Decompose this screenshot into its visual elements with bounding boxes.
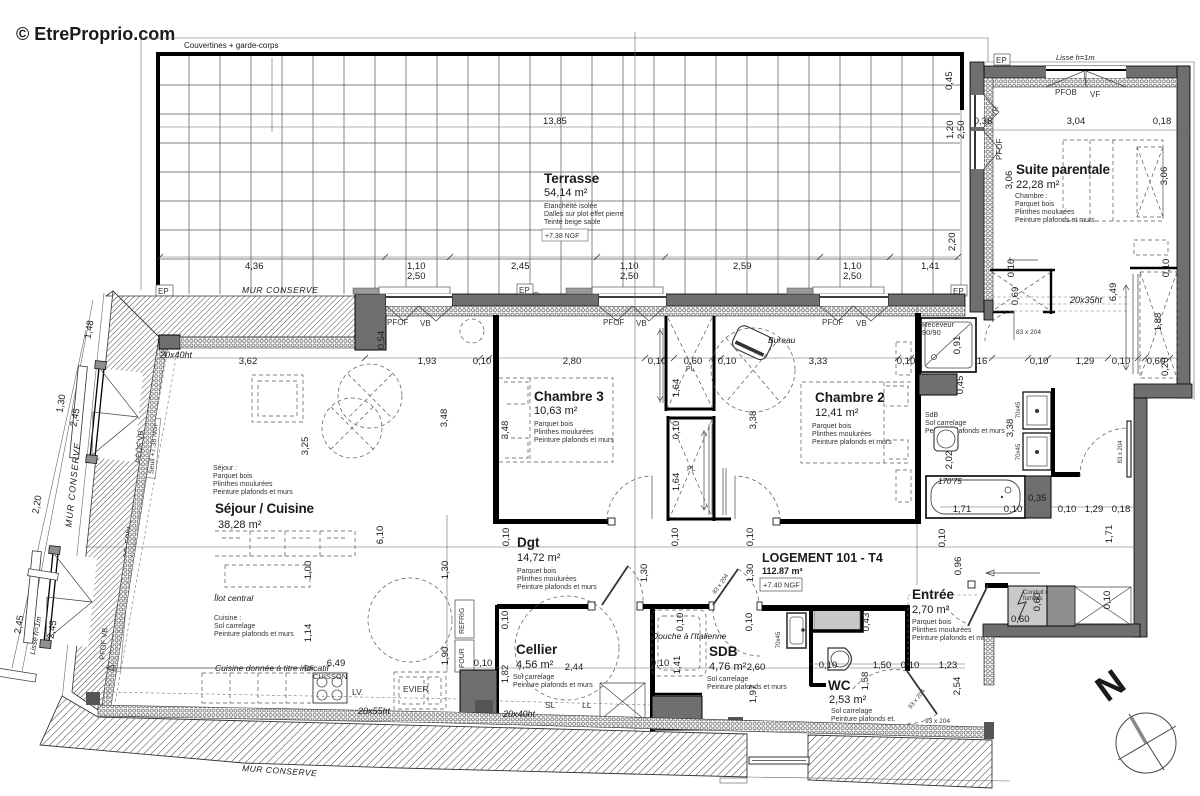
svg-text:Parquet bois: Parquet bois: [213, 473, 253, 480]
svg-text:Peinture plafonds et murs: Peinture plafonds et murs: [517, 584, 597, 591]
svg-text:0,18: 0,18: [1153, 116, 1172, 127]
svg-text:3,48: 3,48: [500, 421, 511, 440]
svg-text:PFOB: PFOB: [1055, 88, 1077, 97]
svg-text:Parquet bois: Parquet bois: [912, 619, 952, 626]
svg-text:LL: LL: [582, 700, 592, 710]
svg-text:Parquet bois: Parquet bois: [812, 423, 852, 430]
svg-text:LV.: LV.: [352, 687, 363, 697]
svg-text:Teinte beige sable: Teinte beige sable: [544, 219, 601, 226]
svg-text:0,91: 0,91: [952, 336, 963, 355]
svg-text:0,10: 0,10: [819, 660, 838, 671]
svg-text:Sol carrelage: Sol carrelage: [707, 676, 748, 683]
svg-text:Sol carrelage: Sol carrelage: [214, 623, 255, 630]
svg-text:1,29: 1,29: [1085, 504, 1104, 515]
svg-text:20x40ht: 20x40ht: [159, 350, 193, 360]
svg-text:0,10: 0,10: [474, 658, 493, 669]
svg-text:2,54: 2,54: [952, 677, 963, 696]
svg-text:0,96: 0,96: [953, 557, 964, 576]
svg-text:90/90: 90/90: [922, 328, 941, 337]
svg-text:12,41 m²: 12,41 m²: [815, 407, 859, 419]
svg-text:Plinthes moulurées: Plinthes moulurées: [1015, 209, 1075, 216]
svg-text:0,10: 0,10: [1030, 356, 1049, 367]
svg-text:83 x 204: 83 x 204: [1118, 440, 1124, 464]
svg-text:Plinthes moulurées: Plinthes moulurées: [517, 576, 577, 583]
svg-text:Séjour :: Séjour :: [213, 465, 237, 472]
svg-text:0,45: 0,45: [944, 72, 955, 91]
svg-text:1,50: 1,50: [873, 660, 892, 671]
svg-text:54,14 m²: 54,14 m²: [544, 187, 588, 199]
svg-text:38,28 m²: 38,28 m²: [218, 519, 262, 531]
svg-text:Peinture plafonds et murs: Peinture plafonds et murs: [214, 631, 294, 638]
svg-text:VF: VF: [1090, 90, 1100, 99]
svg-text:3,62: 3,62: [239, 356, 258, 367]
svg-text:170'75: 170'75: [938, 477, 962, 486]
svg-text:PL: PL: [686, 366, 695, 373]
svg-text:3,06: 3,06: [1004, 171, 1015, 190]
svg-text:FOUR: FOUR: [459, 648, 466, 668]
svg-text:1,97: 1,97: [748, 685, 759, 704]
svg-text:6,10: 6,10: [375, 526, 386, 545]
svg-text:0,10: 0,10: [718, 356, 737, 367]
svg-text:1,41: 1,41: [672, 656, 683, 675]
svg-text:1,14: 1,14: [303, 624, 314, 643]
svg-text:Cellier: Cellier: [516, 642, 558, 657]
svg-text:2,50: 2,50: [843, 271, 862, 282]
svg-text:Parquet bois: Parquet bois: [517, 568, 557, 575]
svg-text:Plinthes moulurées: Plinthes moulurées: [812, 431, 872, 438]
svg-text:0,10: 0,10: [1161, 259, 1172, 278]
svg-text:VB: VB: [420, 319, 431, 328]
svg-text:© EtreProprio.com: © EtreProprio.com: [16, 24, 175, 44]
svg-text:22,28 m²: 22,28 m²: [1016, 179, 1060, 191]
svg-text:1,64: 1,64: [671, 473, 682, 492]
svg-text:2,53 m²: 2,53 m²: [829, 694, 867, 706]
svg-text:CUISSON: CUISSON: [313, 672, 347, 681]
svg-text:0,10: 0,10: [473, 356, 492, 367]
svg-text:2,45: 2,45: [511, 261, 530, 272]
svg-text:+7.38 NGF: +7.38 NGF: [545, 233, 579, 240]
svg-text:Douche à l'Italienne: Douche à l'Italienne: [652, 631, 727, 641]
svg-text:0,35: 0,35: [1028, 493, 1047, 504]
svg-text:Sol carrelage: Sol carrelage: [831, 708, 872, 715]
svg-text:0,10: 0,10: [1112, 356, 1131, 367]
svg-text:VB: VB: [856, 319, 867, 328]
svg-text:0,54: 0,54: [376, 331, 387, 350]
svg-text:1,93: 1,93: [418, 356, 437, 367]
svg-text:0,10: 0,10: [1102, 591, 1113, 610]
svg-text:20x35ht: 20x35ht: [1069, 295, 1103, 305]
svg-text:1,82: 1,82: [500, 665, 511, 684]
svg-text:3,04: 3,04: [1067, 116, 1086, 127]
svg-text:Sol carrelage: Sol carrelage: [925, 420, 966, 427]
svg-text:20x55ht: 20x55ht: [357, 706, 391, 716]
svg-text:1,29: 1,29: [1076, 356, 1095, 367]
svg-text:0,60: 0,60: [1032, 593, 1043, 612]
svg-text:MUR CONSERVE: MUR CONSERVE: [242, 285, 318, 295]
svg-text:112.87 m³: 112.87 m³: [762, 566, 803, 576]
svg-text:1,00: 1,00: [303, 561, 314, 580]
svg-text:0,10: 0,10: [651, 658, 670, 669]
svg-text:4,76 m²: 4,76 m²: [709, 661, 747, 673]
svg-text:Peinture plafonds et murs: Peinture plafonds et murs: [534, 437, 614, 444]
svg-text:0,10: 0,10: [1004, 504, 1023, 515]
svg-text:1,23: 1,23: [939, 660, 958, 671]
svg-text:PFOF: PFOF: [822, 318, 843, 327]
svg-text:2,70 m²: 2,70 m²: [912, 604, 950, 616]
svg-text:Cuisine :: Cuisine :: [214, 615, 241, 622]
svg-text:2,50: 2,50: [620, 271, 639, 282]
svg-text:Peinture plafonds et.: Peinture plafonds et.: [831, 716, 895, 723]
svg-text:3,48: 3,48: [439, 409, 450, 428]
svg-text:PFOF: PFOF: [995, 139, 1004, 160]
svg-text:0,10: 0,10: [1006, 259, 1017, 278]
svg-text:SdB: SdB: [925, 412, 939, 419]
svg-text:0,10: 0,10: [670, 528, 681, 547]
svg-text:20x40ht: 20x40ht: [502, 709, 536, 719]
svg-text:4,36: 4,36: [245, 261, 264, 272]
svg-text:1,71: 1,71: [953, 504, 972, 515]
svg-text:0,18: 0,18: [1112, 504, 1131, 515]
svg-text:EP: EP: [158, 287, 169, 296]
svg-text:2,80: 2,80: [563, 356, 582, 367]
svg-text:0,10: 0,10: [671, 421, 682, 440]
svg-text:0,10: 0,10: [1058, 504, 1077, 515]
svg-text:Terrasse: Terrasse: [544, 171, 600, 186]
svg-text:Bureau: Bureau: [768, 335, 796, 345]
svg-text:Lisse h=1m: Lisse h=1m: [1056, 53, 1095, 62]
svg-text:Plinthes moulurées: Plinthes moulurées: [534, 429, 594, 436]
svg-text:Séjour / Cuisine: Séjour / Cuisine: [215, 501, 315, 516]
svg-text:2,02: 2,02: [944, 451, 955, 470]
svg-text:3,38: 3,38: [1005, 419, 1016, 438]
svg-text:0,10: 0,10: [648, 356, 667, 367]
svg-text:PFOF: PFOF: [603, 318, 624, 327]
svg-text:2,60: 2,60: [747, 662, 766, 673]
svg-text:Chambre :: Chambre :: [1015, 193, 1048, 200]
svg-text:Etanchéité isolée: Etanchéité isolée: [544, 203, 597, 210]
svg-text:2,44: 2,44: [565, 662, 584, 673]
svg-text:6,49: 6,49: [1108, 283, 1119, 302]
svg-text:4,56 m²: 4,56 m²: [516, 659, 554, 671]
svg-text:1,30: 1,30: [745, 564, 756, 583]
svg-text:Peinture plafonds et murs: Peinture plafonds et murs: [513, 682, 593, 689]
svg-text:Sol carrelage: Sol carrelage: [513, 674, 554, 681]
svg-text:0,45: 0,45: [955, 376, 966, 395]
svg-text:70x45: 70x45: [1016, 443, 1022, 460]
svg-text:0,20: 0,20: [1160, 358, 1171, 377]
svg-text:2,50: 2,50: [407, 271, 426, 282]
svg-text:Plinthes moulurées: Plinthes moulurées: [912, 627, 972, 634]
svg-text:0,69: 0,69: [1010, 287, 1021, 306]
svg-text:2,59: 2,59: [733, 261, 752, 272]
svg-text:1,41: 1,41: [921, 261, 940, 272]
svg-text:0,10: 0,10: [745, 528, 756, 547]
svg-text:1,30: 1,30: [440, 561, 451, 580]
svg-text:3,06: 3,06: [1159, 167, 1170, 186]
svg-text:3,38: 3,38: [748, 411, 759, 430]
svg-text:1,90: 1,90: [440, 647, 451, 666]
svg-text:2,50: 2,50: [956, 121, 967, 140]
svg-text:70x45: 70x45: [1016, 401, 1022, 418]
svg-text:Parquet bois: Parquet bois: [534, 421, 574, 428]
svg-text:SL: SL: [545, 700, 556, 710]
svg-text:0,10: 0,10: [937, 529, 948, 548]
svg-text:+7.40 NGF: +7.40 NGF: [763, 581, 800, 590]
svg-text:0,43: 0,43: [861, 613, 872, 632]
svg-text:Chambre 2: Chambre 2: [815, 390, 885, 405]
svg-text:Peinture plafonds et murs: Peinture plafonds et murs: [812, 439, 892, 446]
svg-text:10,63 m²: 10,63 m²: [534, 405, 578, 417]
svg-text:0,10: 0,10: [675, 613, 686, 632]
svg-text:EP: EP: [996, 56, 1007, 65]
svg-text:0,36: 0,36: [974, 116, 993, 127]
svg-text:Peinture plafonds et murs: Peinture plafonds et murs: [912, 635, 992, 642]
svg-text:EVIER: EVIER: [403, 684, 429, 694]
svg-text:3,25: 3,25: [300, 437, 311, 456]
svg-text:Chambre 3: Chambre 3: [534, 389, 604, 404]
svg-text:LOGEMENT 101 - T4: LOGEMENT 101 - T4: [762, 551, 883, 565]
svg-text:0,10: 0,10: [744, 613, 755, 632]
svg-text:1,20: 1,20: [945, 121, 956, 140]
svg-text:1,71: 1,71: [1104, 525, 1115, 544]
svg-text:93 x 204: 93 x 204: [925, 718, 950, 725]
svg-text:1,30: 1,30: [639, 564, 650, 583]
svg-text:VB: VB: [636, 319, 647, 328]
svg-text:1,64: 1,64: [671, 379, 682, 398]
svg-text:13,85: 13,85: [543, 116, 567, 127]
svg-text:1,88: 1,88: [1153, 313, 1164, 332]
svg-text:2,20: 2,20: [947, 233, 958, 252]
svg-text:PL: PL: [687, 466, 696, 473]
svg-text:0,10: 0,10: [897, 356, 916, 367]
svg-text:0,10: 0,10: [501, 528, 512, 547]
svg-text:Couvertines + garde-corps: Couvertines + garde-corps: [184, 41, 279, 50]
svg-text:Peinture plafonds et murs: Peinture plafonds et murs: [1015, 217, 1095, 224]
svg-text:3,33: 3,33: [809, 356, 828, 367]
svg-text:WC: WC: [828, 678, 851, 693]
svg-text:83 x 204: 83 x 204: [1016, 329, 1041, 336]
svg-text:Plinthes moulurées: Plinthes moulurées: [213, 481, 273, 488]
svg-text:SDB: SDB: [709, 644, 738, 659]
svg-text:0,10: 0,10: [500, 611, 511, 630]
svg-text:PFOF: PFOF: [387, 318, 408, 327]
svg-text:Peinture plafonds et murs: Peinture plafonds et murs: [213, 489, 293, 496]
svg-text:Îlot central: Îlot central: [214, 593, 254, 603]
svg-text:Entrée: Entrée: [912, 587, 955, 602]
svg-text:70x45: 70x45: [776, 631, 782, 648]
svg-text:Dalles sur plot effet pierre: Dalles sur plot effet pierre: [544, 211, 624, 218]
svg-text:Parquet bois: Parquet bois: [1015, 201, 1055, 208]
svg-text:REFRIG: REFRIG: [459, 608, 466, 634]
svg-text:6,49: 6,49: [327, 658, 346, 669]
svg-text:14,72 m²: 14,72 m²: [517, 552, 561, 564]
svg-text:Dgt: Dgt: [517, 535, 540, 550]
svg-text:1,58: 1,58: [860, 672, 871, 691]
svg-text:0,60: 0,60: [1011, 614, 1030, 625]
